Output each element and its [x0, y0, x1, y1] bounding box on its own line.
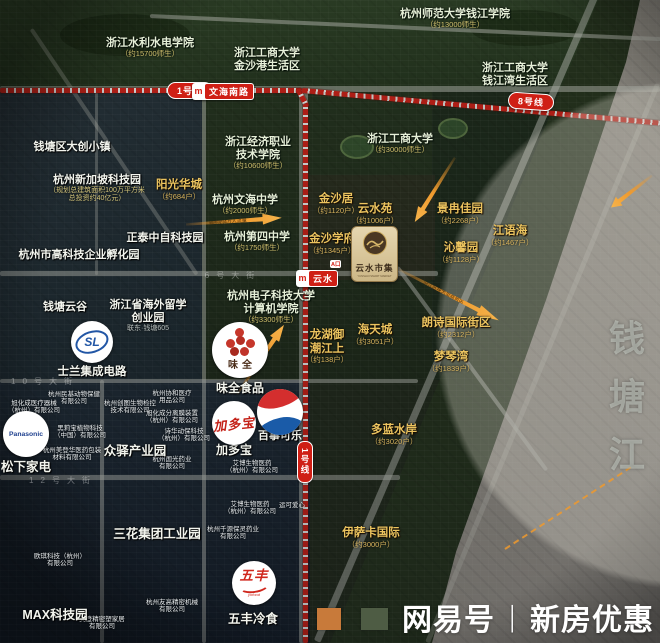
co-meidenghua: 杭州美登华医药包装材料有限公司	[43, 447, 102, 462]
park-dachuang-town: 钱塘区大创小镇	[34, 141, 111, 154]
logo-wufeng: 五丰 yofood	[232, 561, 276, 605]
river-char-qian: 钱	[609, 318, 645, 360]
station-name: 文海南路	[205, 84, 253, 99]
station-wenhainanlu: m 文海南路	[192, 83, 254, 100]
wufeng-subtext: yofood	[239, 593, 269, 597]
co-ouqi: 欧琪科技（杭州）有限公司	[34, 553, 86, 568]
park-zhengtai: 正泰中自科技园	[127, 232, 204, 245]
co-aibo-2: 艾博生物医药（杭州）有限公司	[224, 501, 276, 516]
res-mengqinwan: 梦琴湾（约1839户）	[428, 351, 475, 373]
watermark-divider: 丨	[503, 595, 522, 639]
logo-weiquan: 味全	[212, 322, 268, 378]
res-duolan-shuian: 多蓝水岸（约3020户）	[371, 424, 418, 446]
legend-swatch-orange	[317, 608, 341, 630]
map: 1号线 8号线 1号线 m 文海南路 m 云水 A口 云水市集 YUNSHUI …	[0, 0, 660, 643]
school-gongshang: 浙江工商大学（约30000师生）	[367, 133, 433, 155]
park-sanhua: 三花集团工业园	[113, 527, 201, 542]
res-jingran-jiayuan: 景冉佳园（约2268户）	[437, 203, 484, 225]
logo-jiaduobao: 加多宝	[212, 401, 256, 445]
metro-exit-tag: A口	[330, 260, 341, 268]
res-haitiancheng: 海天城（约3051户）	[352, 324, 399, 346]
metro-line8-badge: 8号线	[507, 91, 554, 111]
logo-pepsi	[257, 389, 303, 435]
watermark-brand: 网易号	[402, 595, 495, 639]
pepsi-globe-icon	[257, 412, 303, 435]
school-gongshang-jinshagang: 浙江工商大学金沙港生活区	[234, 47, 300, 73]
watermark-text: 新房优惠	[530, 595, 654, 639]
station-name: 云水	[309, 271, 337, 286]
yunshui-market-name-en: YUNSHUI SMART MARKET	[354, 274, 395, 278]
res-yisaka-guoji: 伊萨卡国际（约3000户）	[342, 527, 400, 549]
metro-logo-icon: m	[297, 273, 308, 284]
pepsi-globe-icon	[257, 389, 303, 413]
res-yangguang-huacheng: 阳光华城（约684户）	[156, 179, 202, 201]
park-fuhuayuan: 杭州市高科技企业孵化园	[19, 249, 140, 262]
river-char-tang: 塘	[609, 376, 645, 418]
res-jiangyuhai: 江语海（约1467户）	[487, 225, 534, 247]
res-longhu-yuchaojiangshang: 龙湖御潮江上（约138户）	[306, 329, 349, 365]
school-hdu-jisuanji: 杭州电子科技大学计算机学院（约3300师生）	[227, 290, 315, 325]
yunshui-market-name: 云水市集	[352, 262, 397, 274]
res-yunshuiyuan: 云水苑（约1006户）	[352, 203, 399, 225]
res-langshi-guoji: 朗诗国际街区（约2312户）	[422, 317, 491, 339]
co-shihua: 诗华动保科技（杭州）有限公司	[158, 428, 210, 443]
road-12th-street: 12号大街	[29, 476, 97, 485]
co-xiehe: 杭州协和医疗用品公司	[153, 390, 192, 405]
berries-icon	[226, 339, 235, 348]
watermark: 网易号 丨 新房优惠	[402, 595, 654, 639]
road-10th-street: 10号大街	[11, 377, 79, 386]
co-yougao: 杭州友高精密机械有限公司	[146, 599, 198, 614]
road-6th-street: 6号大街	[205, 271, 261, 280]
yunshui-emblem-icon	[362, 230, 388, 256]
weiquan-text: 味全	[228, 356, 256, 371]
park-haiwai-liuxue: 浙江省海外留学创业园联东·钱塘605	[110, 299, 187, 333]
park-max: MAX科技园	[22, 608, 87, 623]
res-jinsha-xuefu: 金沙学府（约1345户）	[309, 233, 356, 255]
school-hangshida-qianjiang: 杭州师范大学钱江学院（约13000师生）	[400, 8, 510, 30]
weiquan-mark: 味全	[224, 330, 256, 371]
co-aibo-1: 艾博生物医药（杭州）有限公司	[226, 460, 278, 475]
wufeng-mark: 五丰 yofood	[239, 569, 269, 598]
co-qianyuan-baoling: 杭州千源保灵药业有限公司	[207, 526, 259, 541]
sl-text: SL	[84, 335, 99, 349]
metro-line1-vertical-badge: 1号线	[297, 441, 313, 483]
school-no4-middle: 杭州第四中学（约1750师生）	[224, 231, 290, 253]
logo-panasonic: Panasonic	[3, 411, 49, 457]
park-zhongyi: 众驿产业园	[104, 444, 167, 459]
school-shuili-shuidian: 浙江水利水电学院（约15700师生）	[106, 37, 194, 59]
river-char-jiang: 江	[609, 434, 645, 476]
school-jingji-zhiye: 浙江经济职业技术学院（约10600师生）	[225, 136, 291, 171]
logo-silan: SL	[71, 321, 113, 363]
co-xuhuacheng-fenli: 旭化成分离膜装置（杭州）有限公司	[146, 410, 198, 425]
co-yunke: 运可爱心	[279, 502, 305, 509]
panasonic-text: Panasonic	[9, 431, 43, 438]
station-yunshui: m 云水	[296, 270, 338, 287]
label-wufeng: 五丰冷食	[228, 612, 278, 627]
legend-swatch-olive	[361, 608, 388, 630]
label-songxia: 松下家电	[1, 460, 51, 475]
arrow-top-right	[608, 171, 656, 212]
park-xinjiapo: 杭州新加坡科技园（规划总建筑面积100万平方米总投资约40亿元）	[49, 174, 145, 203]
label-jdb: 加多宝	[216, 443, 252, 457]
jiaduobao-text: 加多宝	[212, 411, 256, 434]
yunshui-market-logo: 云水市集 YUNSHUI SMART MARKET	[351, 226, 398, 282]
school-gongshang-qianjiangwan: 浙江工商大学钱江湾生活区	[482, 62, 548, 88]
school-wenhai-middle: 杭州文海中学（约2000师生）	[212, 194, 278, 216]
res-qinxinyuan: 沁馨园（约1128户）	[438, 242, 484, 264]
co-heilibao: 黑莉宝植物科技（中国）有限公司	[54, 425, 106, 440]
park-qiantang-yungu: 钱塘云谷	[43, 301, 87, 314]
metro-logo-icon: m	[193, 86, 204, 97]
